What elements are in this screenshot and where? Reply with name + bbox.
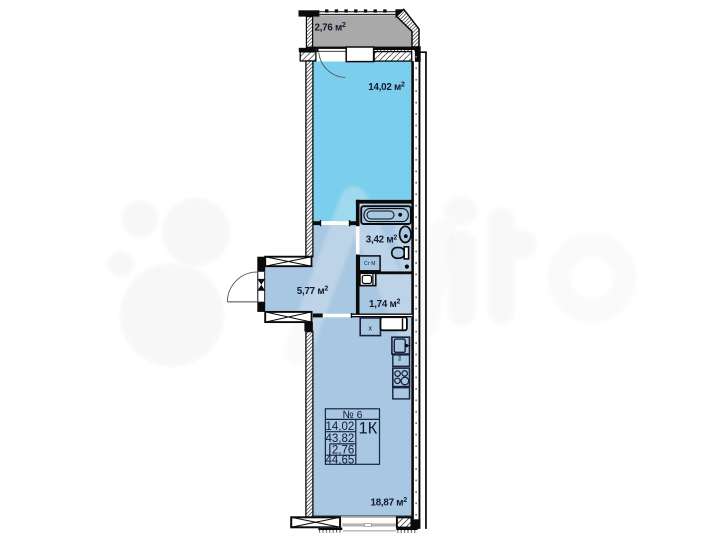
svg-text:14,02: 14,02 [326, 421, 355, 433]
svg-text:18,87 м2: 18,87 м2 [371, 497, 408, 508]
svg-text:43,82: 43,82 [326, 433, 355, 445]
svg-text:х: х [368, 325, 372, 332]
svg-text:44,65: 44,65 [326, 455, 355, 467]
svg-text:Ст М: Ст М [364, 261, 375, 267]
svg-text:пм: пм [397, 356, 402, 362]
svg-text:2,76 м2: 2,76 м2 [315, 22, 347, 33]
svg-text:1,74 м2: 1,74 м2 [369, 299, 401, 310]
svg-text:1К: 1К [359, 420, 378, 438]
svg-text:14,02 м2: 14,02 м2 [368, 82, 405, 93]
svg-text:3,42 м2: 3,42 м2 [366, 234, 398, 245]
svg-text:5,77 м2: 5,77 м2 [297, 286, 329, 297]
